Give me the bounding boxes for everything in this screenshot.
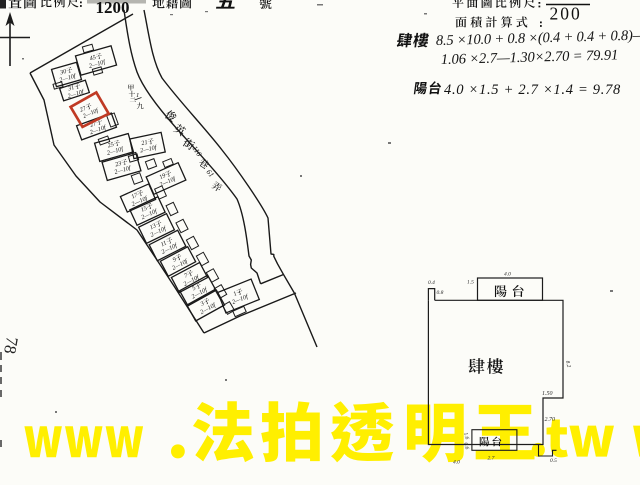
svg-text:0.5: 0.5 (550, 458, 557, 464)
svg-text:2.70: 2.70 (545, 417, 556, 423)
svg-text:200: 200 (550, 4, 582, 24)
svg-text:0.8: 0.8 (437, 290, 444, 296)
svg-text:4.0: 4.0 (453, 459, 460, 466)
svg-text:4.0 ×1.5 + 2.7 ×1.4 = 9.78: 4.0 ×1.5 + 2.7 ×1.4 = 9.78 (444, 82, 621, 98)
svg-text:1: 1 (136, 92, 139, 99)
svg-text:1.50: 1.50 (542, 391, 553, 397)
svg-text:4.0: 4.0 (504, 271, 511, 278)
svg-text:78: 78 (0, 335, 22, 355)
svg-text:1.5: 1.5 (467, 280, 474, 286)
svg-text:2.7: 2.7 (488, 456, 495, 462)
svg-text:0.4: 0.4 (428, 279, 435, 286)
